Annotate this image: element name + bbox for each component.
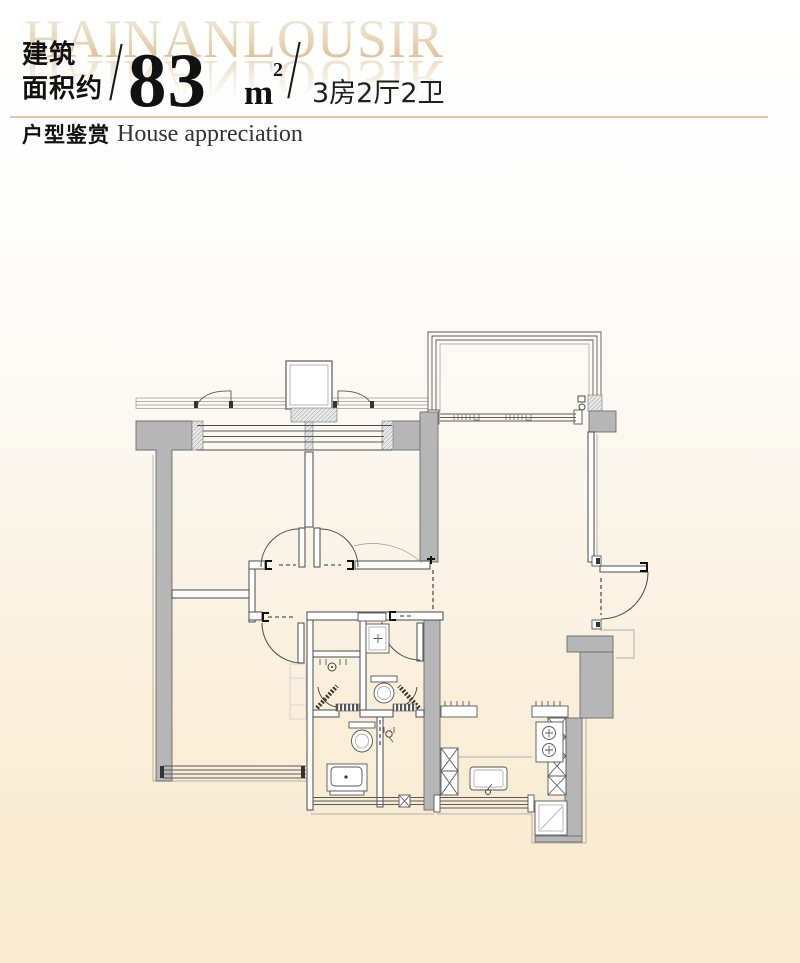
section-title-cn: 户型鉴赏 — [22, 122, 110, 148]
entrance-door — [592, 556, 648, 629]
slash-divider-right: / — [278, 24, 310, 113]
balcony — [428, 332, 602, 412]
north-windows — [136, 391, 428, 409]
wardrobe — [290, 664, 306, 719]
lower-bathroom — [313, 720, 424, 807]
window-band — [192, 408, 393, 450]
dimension-marks — [454, 414, 531, 420]
south-window — [160, 766, 306, 778]
layout-spec: 3房2厅2卫 — [312, 79, 445, 109]
area-unit: m — [244, 75, 273, 110]
section-title-en: House appreciation — [117, 119, 303, 149]
shaft — [286, 361, 332, 409]
page: HAINANLOUSIR HAINANLOUSIR — [0, 0, 800, 963]
guest-bathroom — [317, 624, 419, 711]
kitchen — [434, 701, 568, 835]
balcony-sliding-door — [428, 410, 582, 424]
double-doors — [261, 528, 358, 570]
floor-plan-drawing — [136, 332, 648, 843]
area-label-line2: 面积约 — [22, 72, 103, 106]
master-door — [262, 612, 304, 663]
area-value: 83 — [128, 42, 207, 119]
header-divider-line — [10, 116, 768, 118]
area-label: 建筑 面积约 — [22, 38, 103, 106]
area-label-line1: 建筑 — [22, 38, 103, 72]
